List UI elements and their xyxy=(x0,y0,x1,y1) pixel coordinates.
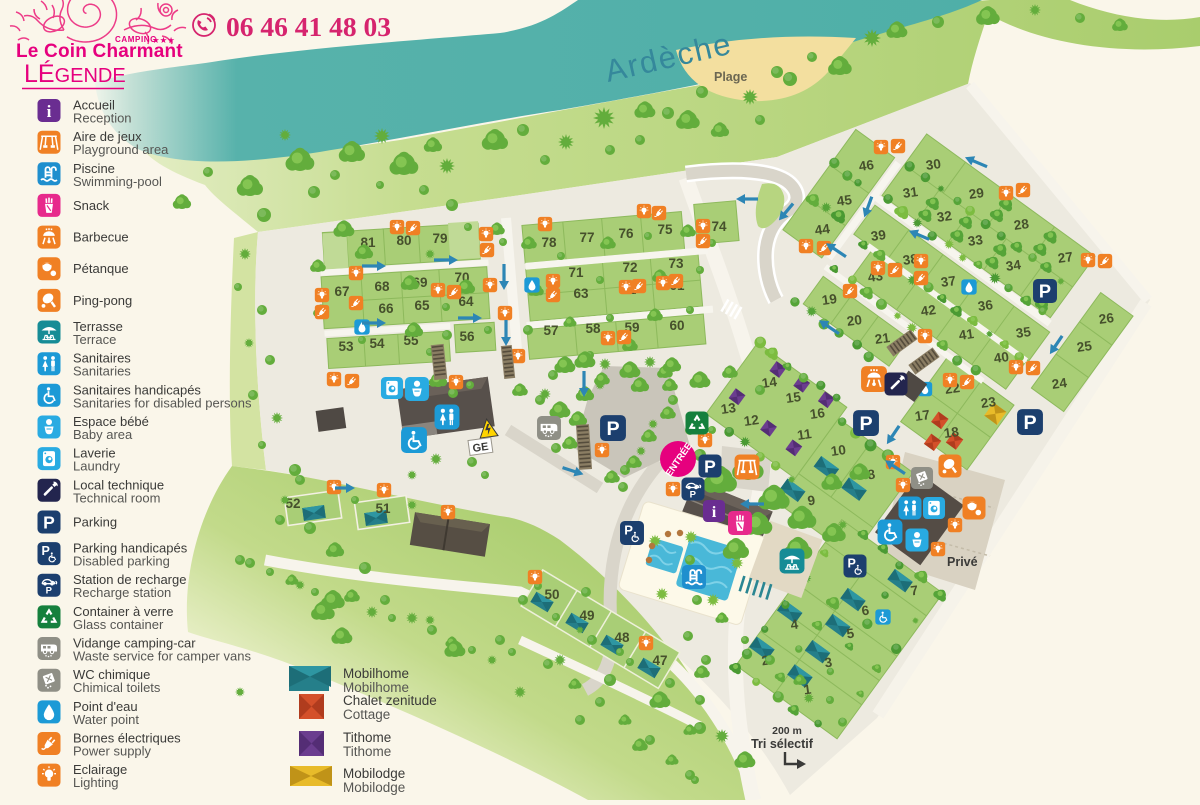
svg-text:Terrace: Terrace xyxy=(73,332,116,347)
svg-text:29: 29 xyxy=(968,185,985,202)
svg-text:Barbecue: Barbecue xyxy=(73,230,129,245)
svg-text:16: 16 xyxy=(809,405,826,422)
svg-text:Sanitaries for disabled person: Sanitaries for disabled persons xyxy=(73,395,252,410)
svg-text:28: 28 xyxy=(1013,216,1030,233)
svg-text:60: 60 xyxy=(669,318,684,333)
svg-text:Sanitaries: Sanitaries xyxy=(73,364,131,379)
svg-text:Cottage: Cottage xyxy=(343,707,390,722)
svg-text:74: 74 xyxy=(711,219,727,234)
svg-text:19: 19 xyxy=(821,291,838,308)
svg-text:66: 66 xyxy=(378,301,394,316)
svg-text:39: 39 xyxy=(870,227,887,244)
svg-text:76: 76 xyxy=(618,226,634,241)
svg-text:45: 45 xyxy=(836,192,853,209)
svg-text:35: 35 xyxy=(1015,324,1032,341)
svg-text:11: 11 xyxy=(796,426,813,443)
svg-text:Power supply: Power supply xyxy=(73,744,152,759)
svg-text:49: 49 xyxy=(579,608,594,623)
svg-text:25: 25 xyxy=(1076,338,1093,355)
svg-text:54: 54 xyxy=(369,336,385,351)
svg-text:Mobilodge: Mobilodge xyxy=(343,766,405,781)
svg-text:75: 75 xyxy=(657,222,673,237)
svg-text:10: 10 xyxy=(830,442,847,459)
svg-text:67: 67 xyxy=(334,284,349,299)
svg-text:12: 12 xyxy=(743,412,760,429)
svg-text:Laundry: Laundry xyxy=(73,459,120,474)
svg-text:40: 40 xyxy=(993,349,1010,366)
svg-text:Swimming-pool: Swimming-pool xyxy=(73,174,162,189)
svg-text:200 m: 200 m xyxy=(772,725,802,737)
svg-text:Pétanque: Pétanque xyxy=(73,261,129,276)
svg-text:Recharge station: Recharge station xyxy=(73,585,171,600)
svg-text:18: 18 xyxy=(943,424,960,441)
svg-text:Chimical toilets: Chimical toilets xyxy=(73,680,161,695)
svg-text:Disabled parking: Disabled parking xyxy=(73,554,170,569)
svg-text:Plage: Plage xyxy=(714,70,747,84)
svg-text:Le Coin Charmant: Le Coin Charmant xyxy=(16,41,183,62)
svg-text:Reception: Reception xyxy=(73,111,132,126)
svg-text:31: 31 xyxy=(902,184,919,201)
svg-text:72: 72 xyxy=(622,260,637,275)
svg-text:30: 30 xyxy=(925,156,942,173)
svg-text:47: 47 xyxy=(652,653,667,668)
svg-text:Tithome: Tithome xyxy=(343,730,391,745)
svg-text:Water point: Water point xyxy=(73,712,139,727)
svg-text:20: 20 xyxy=(846,312,863,329)
svg-text:Ping-pong: Ping-pong xyxy=(73,293,132,308)
svg-text:71: 71 xyxy=(568,265,584,280)
svg-text:06 46 41 48 03: 06 46 41 48 03 xyxy=(226,11,391,42)
svg-text:80: 80 xyxy=(396,233,411,248)
svg-text:Glass container: Glass container xyxy=(73,617,164,632)
svg-text:27: 27 xyxy=(1057,249,1074,266)
svg-text:Mobilodge: Mobilodge xyxy=(343,780,405,795)
svg-text:Technical room: Technical room xyxy=(73,490,160,505)
svg-text:33: 33 xyxy=(967,232,984,249)
svg-text:Snack: Snack xyxy=(73,198,110,213)
svg-text:Mobilhome: Mobilhome xyxy=(343,666,409,681)
svg-text:51: 51 xyxy=(375,501,391,516)
svg-text:34: 34 xyxy=(1005,257,1022,274)
svg-text:63: 63 xyxy=(573,286,589,301)
svg-text:13: 13 xyxy=(720,400,737,417)
svg-text:77: 77 xyxy=(579,230,594,245)
svg-text:65: 65 xyxy=(414,298,430,313)
svg-text:GE: GE xyxy=(472,441,489,455)
svg-text:42: 42 xyxy=(920,302,937,319)
svg-text:32: 32 xyxy=(936,208,953,225)
svg-text:41: 41 xyxy=(958,326,975,343)
svg-text:36: 36 xyxy=(977,297,994,314)
svg-text:57: 57 xyxy=(543,323,558,338)
svg-text:79: 79 xyxy=(432,231,447,246)
svg-text:21: 21 xyxy=(874,330,891,347)
svg-text:Tri sélectif: Tri sélectif xyxy=(751,737,814,751)
svg-text:Playground area: Playground area xyxy=(73,142,169,157)
svg-text:50: 50 xyxy=(544,587,559,602)
svg-text:Chalet zenitude: Chalet zenitude xyxy=(343,693,437,708)
svg-text:23: 23 xyxy=(980,394,997,411)
svg-text:58: 58 xyxy=(585,321,601,336)
svg-text:Waste service for camper vans: Waste service for camper vans xyxy=(73,649,251,664)
svg-text:17: 17 xyxy=(914,407,931,424)
svg-text:68: 68 xyxy=(374,279,390,294)
svg-text:53: 53 xyxy=(338,339,354,354)
svg-text:46: 46 xyxy=(858,157,875,174)
svg-text:Tithome: Tithome xyxy=(343,744,391,759)
svg-text:56: 56 xyxy=(459,329,475,344)
svg-text:Privé: Privé xyxy=(947,555,978,569)
svg-text:48: 48 xyxy=(614,630,630,645)
svg-text:Parking: Parking xyxy=(73,515,117,530)
svg-text:73: 73 xyxy=(668,256,684,271)
svg-text:37: 37 xyxy=(940,273,957,290)
svg-text:78: 78 xyxy=(541,235,557,250)
svg-text:15: 15 xyxy=(785,389,802,406)
svg-text:24: 24 xyxy=(1051,375,1068,392)
svg-text:26: 26 xyxy=(1098,310,1115,327)
svg-text:44: 44 xyxy=(814,221,831,238)
svg-text:Baby area: Baby area xyxy=(73,427,133,442)
svg-text:Lighting: Lighting xyxy=(73,775,119,790)
